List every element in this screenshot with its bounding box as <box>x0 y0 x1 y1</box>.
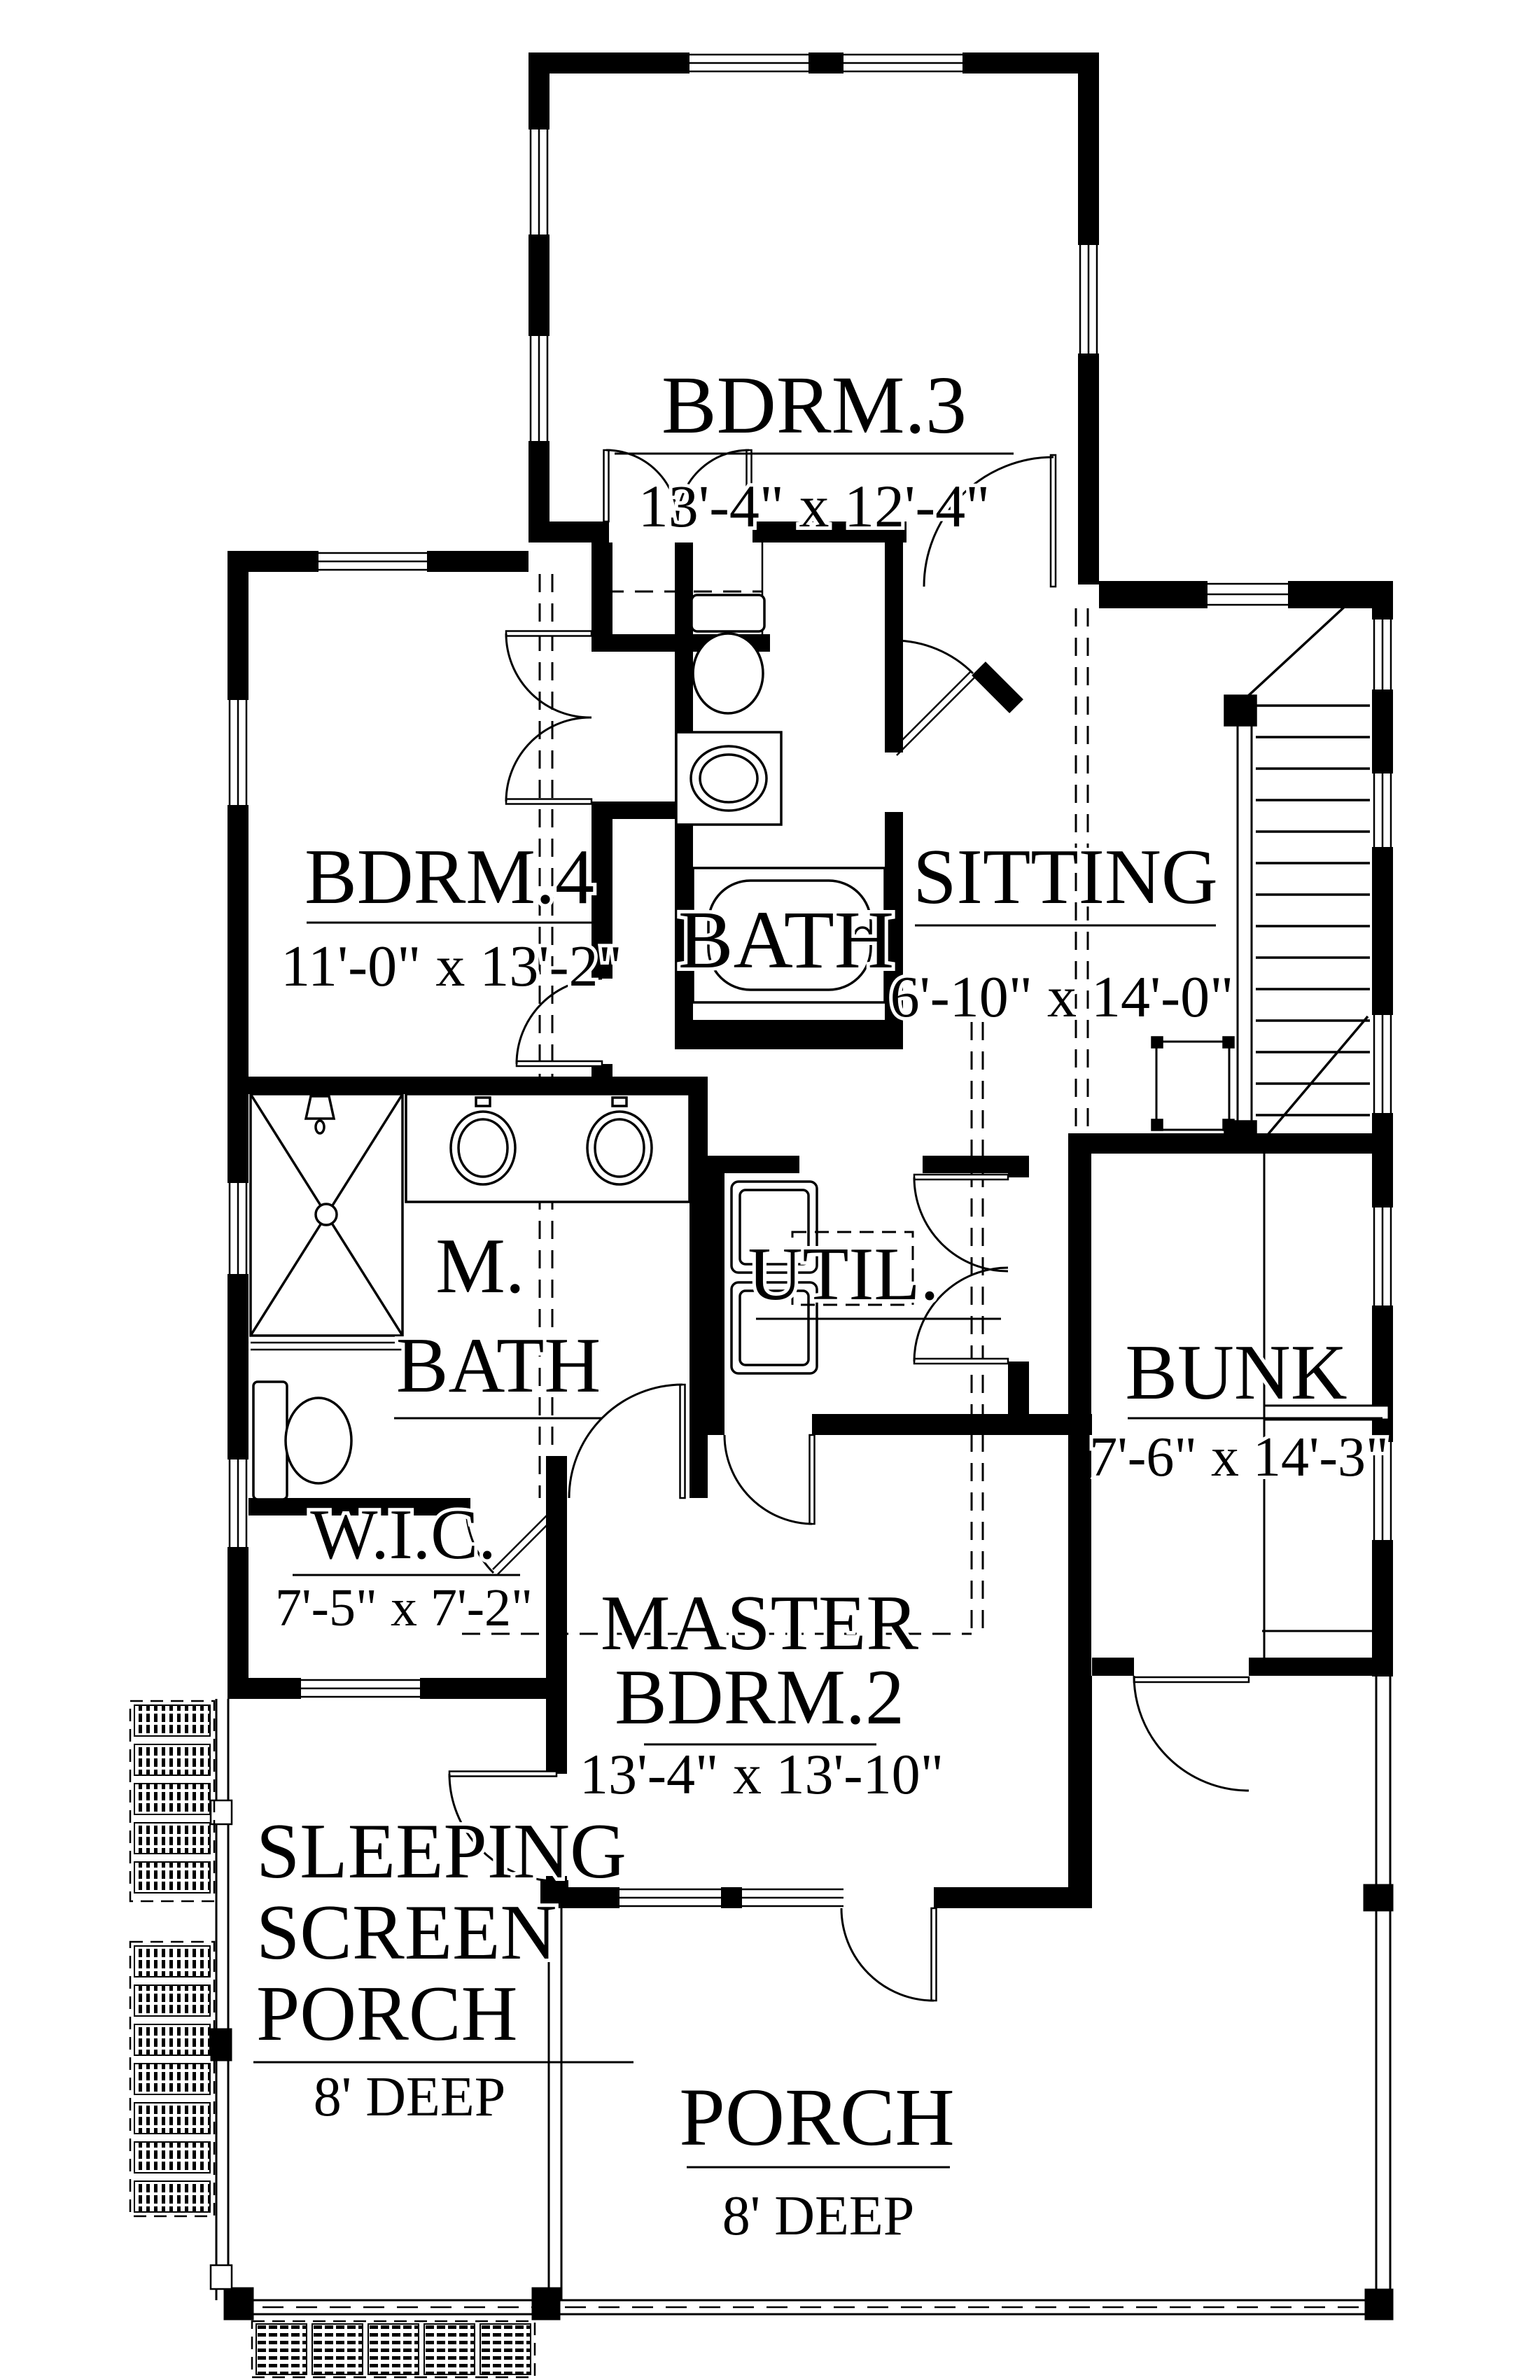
wall-segment <box>812 1414 1092 1435</box>
wall-segment <box>591 801 675 819</box>
room-label-wic: W.I.C. <box>310 1495 496 1574</box>
wall-segment <box>707 1414 724 1435</box>
room-label-bunk: BUNK <box>1125 1329 1347 1416</box>
room-dims-sleeping: 8' DEEP <box>314 2066 505 2128</box>
wall-segment <box>885 521 903 752</box>
room-label-master-line2: BDRM.2 <box>615 1654 904 1741</box>
wall-segment <box>1249 1658 1393 1676</box>
toilet <box>692 595 764 713</box>
wall-segment <box>1008 1156 1029 1177</box>
wall-segment <box>934 1887 1089 1908</box>
porch-post <box>1364 1884 1393 1911</box>
stair-railing <box>1238 706 1252 1149</box>
door-swing <box>1134 1676 1249 1791</box>
window <box>227 700 248 805</box>
door-swing <box>724 1435 815 1524</box>
window <box>528 336 549 441</box>
room-dims-bunk: 7'-6" x 14'-3" <box>1089 1427 1388 1488</box>
window <box>742 1887 843 1908</box>
window <box>619 1887 721 1908</box>
door-swing <box>841 1908 937 2001</box>
bathroom-sink <box>676 732 781 825</box>
angled-wall <box>979 668 1016 706</box>
wall-segment <box>1068 1133 1091 1676</box>
room-label-bath: BATH <box>678 894 894 986</box>
window <box>1372 1207 1393 1305</box>
door-swing <box>892 640 976 755</box>
wall-segment <box>528 52 549 542</box>
shower <box>251 1094 402 1350</box>
room-label-util: UTIL. <box>748 1233 939 1316</box>
room-label-sitting: SITTING <box>913 834 1217 920</box>
labels-layer: BDRM.3 13'-4" x 12'-4" BDRM.4 11'-0" x 1… <box>253 359 1389 2247</box>
room-label-sleeping-line1: SLEEPING <box>256 1808 626 1895</box>
wall-segment <box>721 1887 742 1908</box>
room-label-porch: PORCH <box>679 2071 954 2163</box>
window <box>1372 1015 1393 1113</box>
room-dims-master: 13'-4" x 13'-10" <box>580 1742 944 1806</box>
floor-plan-page: BDRM.3 13'-4" x 12'-4" BDRM.4 11'-0" x 1… <box>0 0 1540 2380</box>
desk <box>1152 1037 1233 1130</box>
room-dims-bdrm4: 11'-0" x 13'-2" <box>281 934 622 999</box>
room-label-master-bath-line1: M. <box>435 1223 525 1310</box>
porch-post <box>224 2288 253 2320</box>
toilet <box>253 1382 351 1499</box>
window <box>318 551 427 572</box>
porch-post <box>1365 2289 1393 2320</box>
double-door <box>506 631 591 804</box>
window <box>227 1183 248 1274</box>
room-label-bdrm3: BDRM.3 <box>661 359 967 451</box>
stair-treads-hatched <box>256 2324 531 2374</box>
room-label-master-bath-line2: BATH <box>396 1322 601 1409</box>
floor-plan-drawing: BDRM.3 13'-4" x 12'-4" BDRM.4 11'-0" x 1… <box>0 0 1540 2380</box>
double-vanity <box>406 1094 689 1202</box>
wall-segment <box>1008 1361 1029 1414</box>
window <box>1372 619 1393 689</box>
room-dims-sitting: 6'-10" x 14'-0" <box>890 965 1234 1030</box>
wall-segment <box>528 52 1099 73</box>
newel-post <box>1225 696 1256 725</box>
wall-segment <box>689 1077 708 1498</box>
window <box>301 1678 420 1699</box>
wall-segment <box>546 1456 567 1774</box>
room-label-sleeping-line2: SCREEN <box>256 1889 556 1976</box>
screen-post <box>211 2265 232 2289</box>
room-label-bdrm4: BDRM.4 <box>304 834 594 920</box>
window <box>689 52 808 73</box>
staircase <box>1225 587 1370 1152</box>
window <box>227 1459 248 1547</box>
wall-segment <box>528 521 609 542</box>
wall-segment <box>248 1077 707 1094</box>
room-dims-wic: 7'-5" x 7'-2" <box>275 1578 533 1637</box>
window <box>1078 245 1099 353</box>
porch-post <box>532 2288 560 2320</box>
wall-segment <box>591 542 612 634</box>
stair-treads-hatched <box>134 1946 210 2212</box>
stair-break-line <box>1260 1016 1368 1144</box>
stair-treads <box>1256 706 1370 1115</box>
room-dims-porch: 8' DEEP <box>722 2185 914 2247</box>
room-dims-bdrm3: 13'-4" x 12'-4" <box>638 472 990 540</box>
wall-segment <box>707 1156 724 1414</box>
window <box>528 129 549 234</box>
room-label-sleeping-line3: PORCH <box>256 1970 517 2057</box>
stair-treads-hatched <box>134 1705 210 1893</box>
wall-segment <box>1068 1676 1092 1908</box>
wall-segment <box>1092 1658 1134 1676</box>
window <box>1372 773 1393 847</box>
window <box>843 52 962 73</box>
window <box>1207 581 1288 608</box>
wall-segment <box>675 1020 903 1049</box>
